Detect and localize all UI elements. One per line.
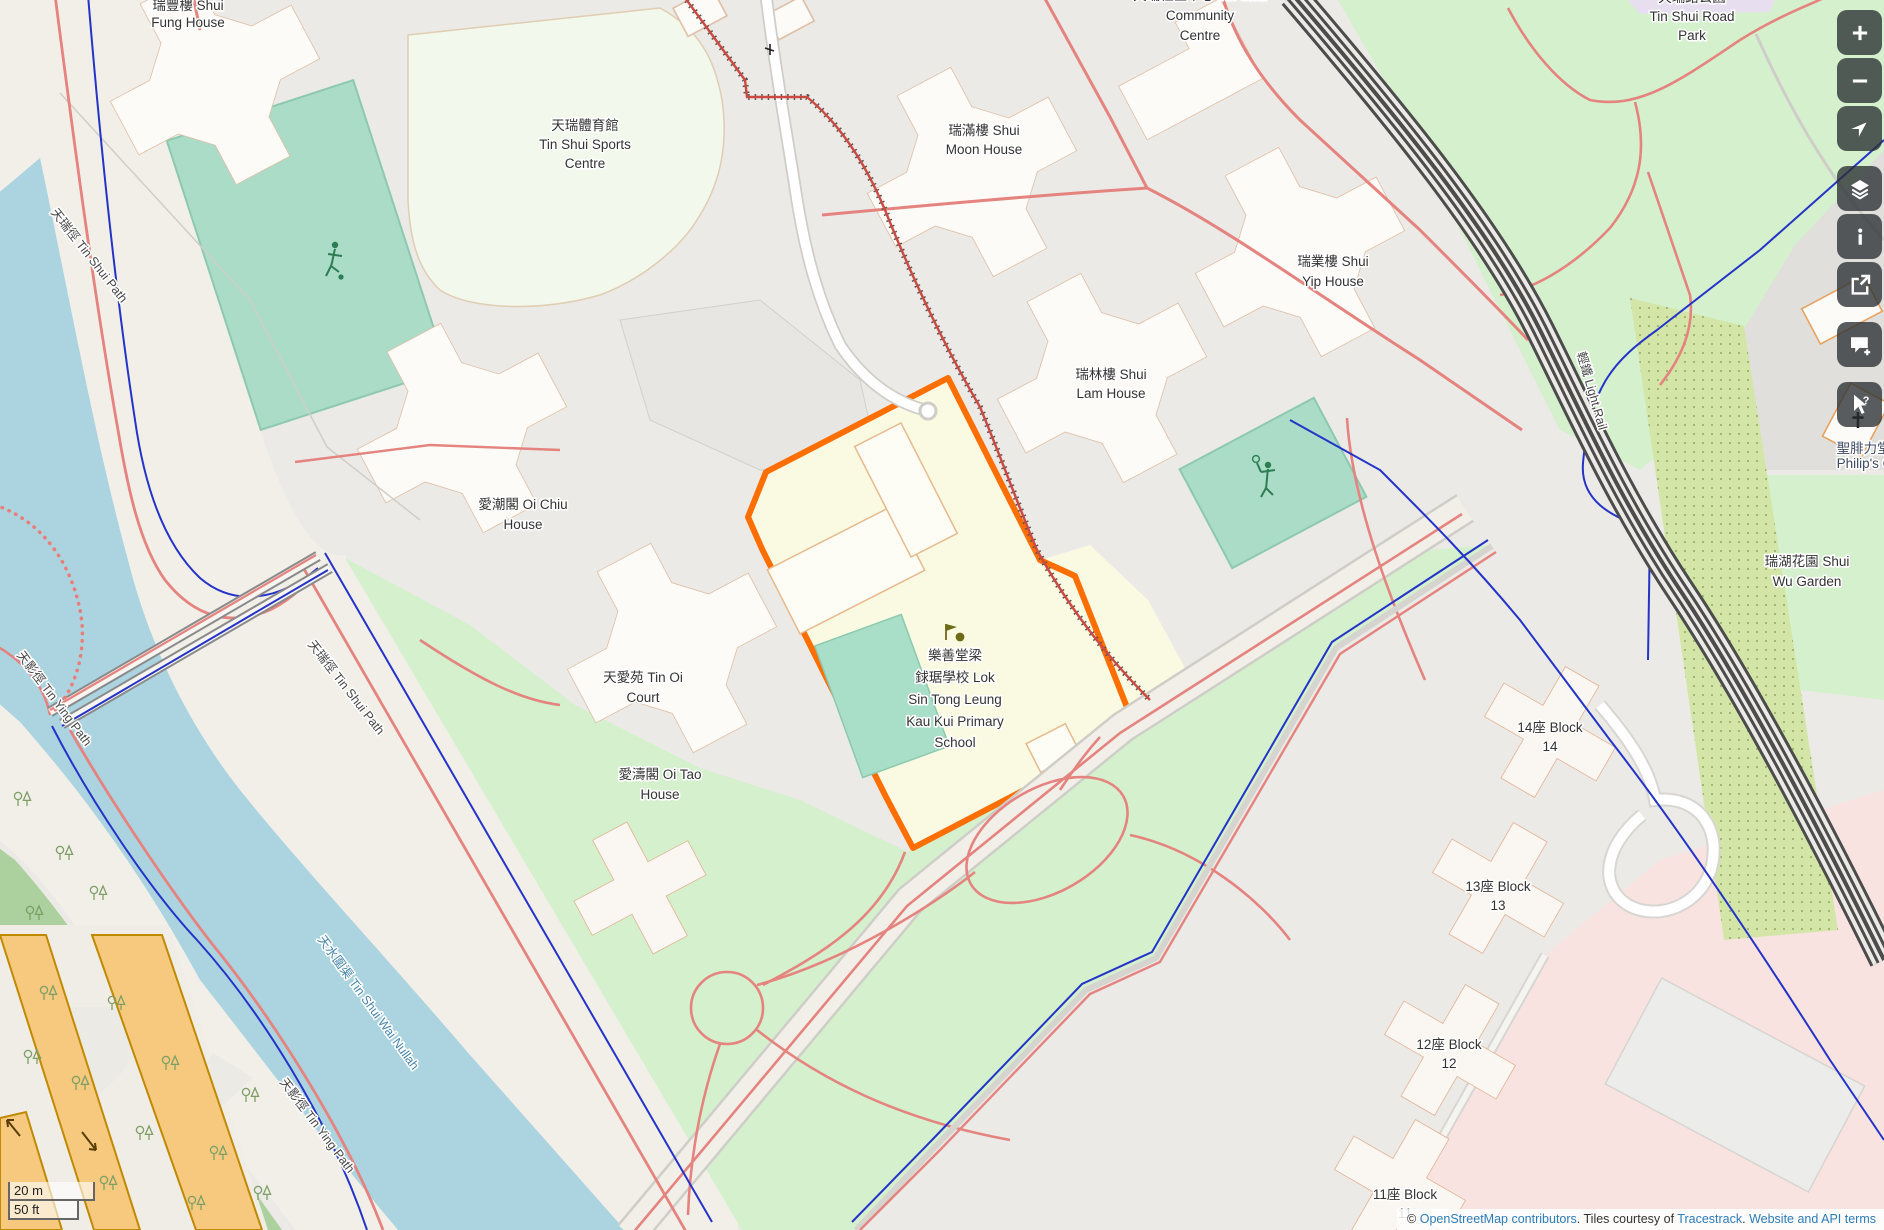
label-moon-house: 瑞滿樓 Shui xyxy=(948,123,1019,138)
label-oi-tao-house: 愛濤閣 Oi Tao xyxy=(618,767,701,782)
tracestrack-link[interactable]: Tracestrack xyxy=(1677,1212,1742,1226)
query-cursor-icon: ? xyxy=(1848,393,1872,417)
label-block-12: 12座 Block xyxy=(1416,1037,1482,1052)
label-sports-centre: 天瑞體育館 xyxy=(551,118,619,133)
label-road-park: Tin Shui Road xyxy=(1649,9,1734,24)
label-oi-chiu-house: House xyxy=(503,517,542,532)
share-icon xyxy=(1848,273,1872,297)
label-lam-house: Lam House xyxy=(1076,386,1145,401)
label-road-park: 天瑞路公園 xyxy=(1658,0,1726,5)
terms-link[interactable]: Website and API terms xyxy=(1749,1212,1876,1226)
scale-bar: 20 m 50 ft xyxy=(8,1182,95,1220)
note-bubble-icon xyxy=(1848,333,1872,357)
layers-button[interactable] xyxy=(1837,166,1882,211)
minus-icon xyxy=(1849,70,1871,92)
attribution-text: . Tiles courtesy of xyxy=(1577,1212,1678,1226)
label-st-philips-church: 聖腓力堂 S xyxy=(1837,441,1884,456)
label-block-14: 14座 Block xyxy=(1517,720,1583,735)
label-community-centre: Community xyxy=(1166,8,1235,23)
label-sports-centre: Tin Shui Sports xyxy=(539,137,631,152)
layers-icon xyxy=(1848,177,1872,201)
map-canvas[interactable]: ✝ 瑞豐樓 Shui Fung House 天瑞體育館 Tin Shui Spo… xyxy=(0,0,1884,1230)
label-yip-house: Yip House xyxy=(1302,274,1364,289)
label-shui-fung-house: Fung House xyxy=(151,15,225,30)
info-icon xyxy=(1849,226,1871,248)
label-school: 銶琚學校 Lok xyxy=(915,669,995,685)
label-block-14: 14 xyxy=(1542,739,1558,754)
label-school: Sin Tong Leung xyxy=(908,692,1002,707)
label-shui-wu-garden: Wu Garden xyxy=(1773,574,1842,589)
label-oi-chiu-house: 愛潮閣 Oi Chiu xyxy=(478,497,567,512)
label-school: School xyxy=(934,735,975,750)
scale-imperial: 50 ft xyxy=(8,1201,79,1220)
map-viewport[interactable]: ✝ 瑞豐樓 Shui Fung House 天瑞體育館 Tin Shui Spo… xyxy=(0,0,1884,1230)
label-block-13: 13 xyxy=(1490,898,1505,913)
label-block-13: 13座 Block xyxy=(1465,879,1531,894)
label-sports-centre: Centre xyxy=(565,156,606,171)
label-oi-tao-house: House xyxy=(640,787,679,802)
locate-button[interactable] xyxy=(1837,106,1882,151)
label-community-centre: Centre xyxy=(1180,28,1221,43)
label-school: 樂善堂梁 xyxy=(928,647,982,663)
label-road-park: Park xyxy=(1678,28,1706,43)
label-community-centre: 天瑞社區中心 Tin Shui xyxy=(1133,0,1267,3)
label-block-12: 12 xyxy=(1441,1056,1456,1071)
query-features-button[interactable]: ? xyxy=(1837,382,1882,427)
label-tin-oi-court: 天愛苑 Tin Oi xyxy=(603,670,683,685)
add-note-button[interactable] xyxy=(1837,322,1882,367)
attribution-bar: © OpenStreetMap contributors. Tiles cour… xyxy=(1397,1209,1884,1230)
zoom-out-button[interactable] xyxy=(1837,58,1882,103)
label-moon-house: Moon House xyxy=(946,142,1023,157)
label-yip-house: 瑞業樓 Shui xyxy=(1297,254,1368,269)
copyright-symbol: © xyxy=(1407,1212,1416,1226)
label-st-philips-church: Philip's Chu xyxy=(1837,456,1884,471)
plus-icon xyxy=(1849,22,1871,44)
label-tin-oi-court: Court xyxy=(626,690,659,705)
share-button[interactable] xyxy=(1837,262,1882,307)
label-shui-fung-house: 瑞豐樓 Shui xyxy=(152,0,223,13)
svg-text:?: ? xyxy=(1862,394,1869,406)
osm-contributors-link[interactable]: OpenStreetMap contributors xyxy=(1420,1212,1577,1226)
locate-arrow-icon xyxy=(1849,118,1871,140)
label-lam-house: 瑞林樓 Shui xyxy=(1075,367,1146,382)
label-block-11: 11座 Block xyxy=(1373,1187,1438,1202)
map-key-button[interactable] xyxy=(1837,214,1882,259)
scale-metric: 20 m xyxy=(8,1182,95,1201)
label-school: Kau Kui Primary xyxy=(906,714,1004,729)
zoom-in-button[interactable] xyxy=(1837,10,1882,55)
label-shui-wu-garden: 瑞湖花園 Shui xyxy=(1765,554,1850,569)
